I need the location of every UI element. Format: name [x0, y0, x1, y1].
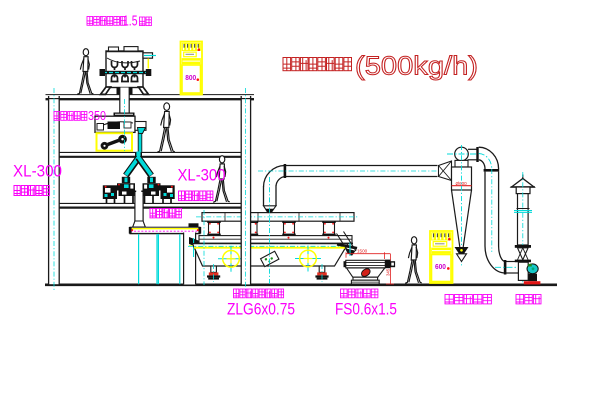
- svg-text:1.5: 1.5: [123, 13, 138, 30]
- svg-text:XL-300: XL-300: [13, 162, 62, 181]
- svg-text:800: 800: [185, 75, 196, 82]
- svg-text:1500: 1500: [357, 249, 368, 254]
- svg-text:350: 350: [88, 109, 106, 123]
- svg-text:345: 345: [385, 268, 390, 276]
- svg-text:600: 600: [435, 264, 446, 271]
- svg-text:FS0.6x1.5: FS0.6x1.5: [335, 300, 397, 319]
- svg-text:XL-300: XL-300: [178, 166, 226, 185]
- svg-text:(500kg/h): (500kg/h): [355, 51, 478, 81]
- svg-text:ZLG6x0.75: ZLG6x0.75: [227, 300, 295, 319]
